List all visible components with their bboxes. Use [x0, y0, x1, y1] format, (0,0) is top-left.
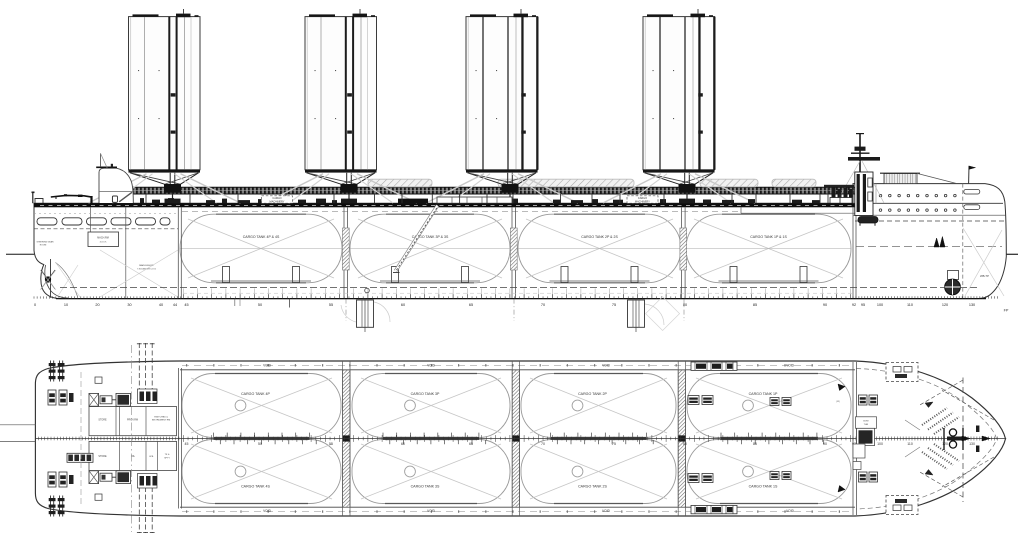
svg-text:30: 30 [127, 303, 131, 307]
svg-text:100: 100 [877, 442, 883, 446]
svg-text:VOID: VOID [263, 509, 271, 513]
svg-text:CARGO TANK 4P: CARGO TANK 4P [241, 392, 270, 396]
svg-text:60: 60 [401, 442, 405, 446]
svg-text:MACHINERY: MACHINERY [635, 200, 650, 203]
svg-text:10: 10 [64, 303, 68, 307]
svg-text:40: 40 [159, 303, 163, 307]
svg-text:MACH.RM: MACH.RM [97, 237, 108, 240]
svg-text:45: 45 [184, 303, 188, 307]
svg-text:TK &: TK & [165, 454, 170, 456]
svg-text:CARGO TANK 1S: CARGO TANK 1S [749, 484, 778, 488]
svg-text:W.B.: W.B. [149, 456, 154, 458]
svg-text:3rd DK: 3rd DK [100, 241, 107, 244]
svg-text:CARGO TANK 2P: CARGO TANK 2P [578, 392, 607, 396]
svg-text:CARGO TANK 1P: CARGO TANK 1P [749, 392, 778, 396]
svg-text:85: 85 [753, 303, 757, 307]
svg-text:MACHINERY: MACHINERY [270, 200, 285, 203]
svg-text:VOID: VOID [602, 363, 610, 367]
svg-text:55: 55 [329, 442, 333, 446]
svg-text:75: 75 [612, 442, 616, 446]
svg-text:120: 120 [942, 442, 948, 446]
svg-text:WB-TP: WB-TP [980, 274, 989, 278]
svg-text:90: 90 [823, 442, 827, 446]
svg-text:60: 60 [401, 303, 405, 307]
svg-text:55: 55 [329, 303, 333, 307]
svg-text:VOID: VOID [427, 363, 435, 367]
svg-text:20: 20 [95, 303, 99, 307]
svg-text:STEERING GEAR: STEERING GEAR [36, 241, 54, 244]
svg-text:STORE: STORE [98, 455, 107, 458]
svg-text:85: 85 [753, 442, 757, 446]
svg-text:120: 120 [942, 303, 948, 307]
svg-text:VOID: VOID [263, 363, 271, 367]
svg-text:PROV.RM: PROV.RM [127, 419, 138, 422]
svg-text:CARGO TANK 3P: CARGO TANK 3P [411, 392, 440, 396]
svg-text:0: 0 [34, 303, 36, 307]
svg-text:95: 95 [861, 303, 865, 307]
svg-text:SFTY: SFTY [164, 457, 170, 459]
svg-text:70: 70 [541, 442, 545, 446]
svg-text:45: 45 [185, 442, 189, 446]
svg-text:CARGO TANK 1P & 1S: CARGO TANK 1P & 1S [750, 235, 787, 239]
svg-text:VOID: VOID [427, 509, 435, 513]
svg-text:44: 44 [173, 303, 177, 307]
svg-text:65: 65 [469, 442, 473, 446]
svg-text:THR: THR [864, 424, 869, 426]
svg-text:80: 80 [683, 442, 687, 446]
svg-text:FP: FP [1004, 309, 1009, 313]
svg-text:VOID: VOID [786, 509, 794, 513]
svg-text:92: 92 [852, 303, 856, 307]
svg-text:50: 50 [258, 442, 262, 446]
svg-text:130: 130 [969, 442, 975, 446]
svg-text:INSTRUMENT RM: INSTRUMENT RM [152, 420, 170, 422]
svg-text:STORE: STORE [98, 419, 107, 422]
svg-text:CARGO TANK 4S: CARGO TANK 4S [241, 484, 270, 488]
svg-text:VOID: VOID [786, 363, 794, 367]
svg-text:80: 80 [683, 303, 687, 307]
svg-text:CARGO TANK 4P & 4S: CARGO TANK 4P & 4S [243, 235, 280, 239]
svg-text:CARGO TANK 3S: CARGO TANK 3S [411, 484, 440, 488]
svg-text:110: 110 [907, 442, 913, 446]
svg-text:75: 75 [612, 303, 616, 307]
svg-text:VOID: VOID [602, 509, 610, 513]
svg-text:BOW: BOW [863, 421, 869, 423]
svg-text:130: 130 [969, 303, 975, 307]
svg-text:CARGO TANK 2P & 2S: CARGO TANK 2P & 2S [581, 235, 618, 239]
svg-text:50: 50 [258, 303, 262, 307]
svg-text:100: 100 [877, 303, 883, 307]
svg-text:70: 70 [541, 303, 545, 307]
svg-text:(W): (W) [836, 401, 840, 403]
svg-text:110: 110 [907, 303, 913, 307]
svg-text:SWITCHBD &: SWITCHBD & [154, 417, 168, 419]
svg-text:65: 65 [469, 303, 473, 307]
svg-text:90: 90 [823, 303, 827, 307]
svg-text:ROOM: ROOM [40, 244, 47, 246]
svg-text:CARGO TANK 2S: CARGO TANK 2S [578, 484, 607, 488]
